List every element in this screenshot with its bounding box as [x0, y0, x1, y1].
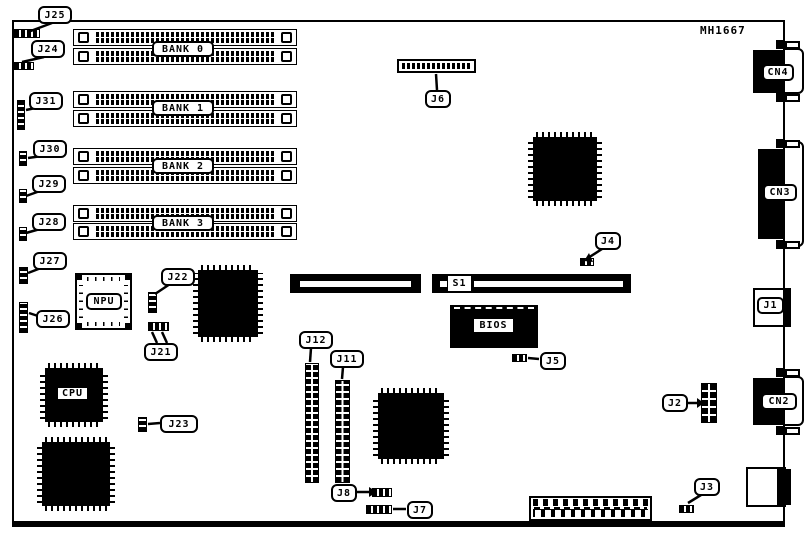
- callout-j27: J27: [33, 252, 67, 270]
- callout-j21: J21: [144, 343, 178, 361]
- callout-j22: J22: [161, 268, 195, 286]
- callout-j29: J29: [32, 175, 66, 193]
- callout-j4: J4: [595, 232, 621, 250]
- leader-j12: [310, 348, 311, 362]
- callout-j31: J31: [29, 92, 63, 110]
- callout-j2: J2: [662, 394, 688, 412]
- callout-j3: J3: [694, 478, 720, 496]
- callout-leader-lines: [0, 0, 807, 539]
- callout-j28: J28: [32, 213, 66, 231]
- callout-j30: J30: [33, 140, 67, 158]
- leader-j5: [528, 358, 539, 359]
- leader-j3: [688, 495, 701, 503]
- callout-j11: J11: [330, 350, 364, 368]
- callout-j7: J7: [407, 501, 433, 519]
- motherboard-diagram: MH1667 BANK 0 BANK 1 BANK 2 BANK 3 CPU N…: [0, 0, 807, 539]
- callout-j12: J12: [299, 331, 333, 349]
- leader-j2-arrow: [697, 398, 704, 408]
- callout-j25: J25: [38, 6, 72, 24]
- leader-j11: [342, 367, 343, 379]
- callout-j24: J24: [31, 40, 65, 58]
- leader-j8-arrow: [369, 487, 377, 497]
- callout-j8: J8: [331, 484, 357, 502]
- callout-j26: J26: [36, 310, 70, 328]
- callout-j6: J6: [425, 90, 451, 108]
- callout-j5: J5: [540, 352, 566, 370]
- leader-j6: [436, 74, 437, 90]
- leader-j21: [152, 332, 167, 343]
- callout-j23: J23: [160, 415, 198, 433]
- leader-j23: [148, 423, 160, 424]
- leader-j25: [28, 23, 52, 32]
